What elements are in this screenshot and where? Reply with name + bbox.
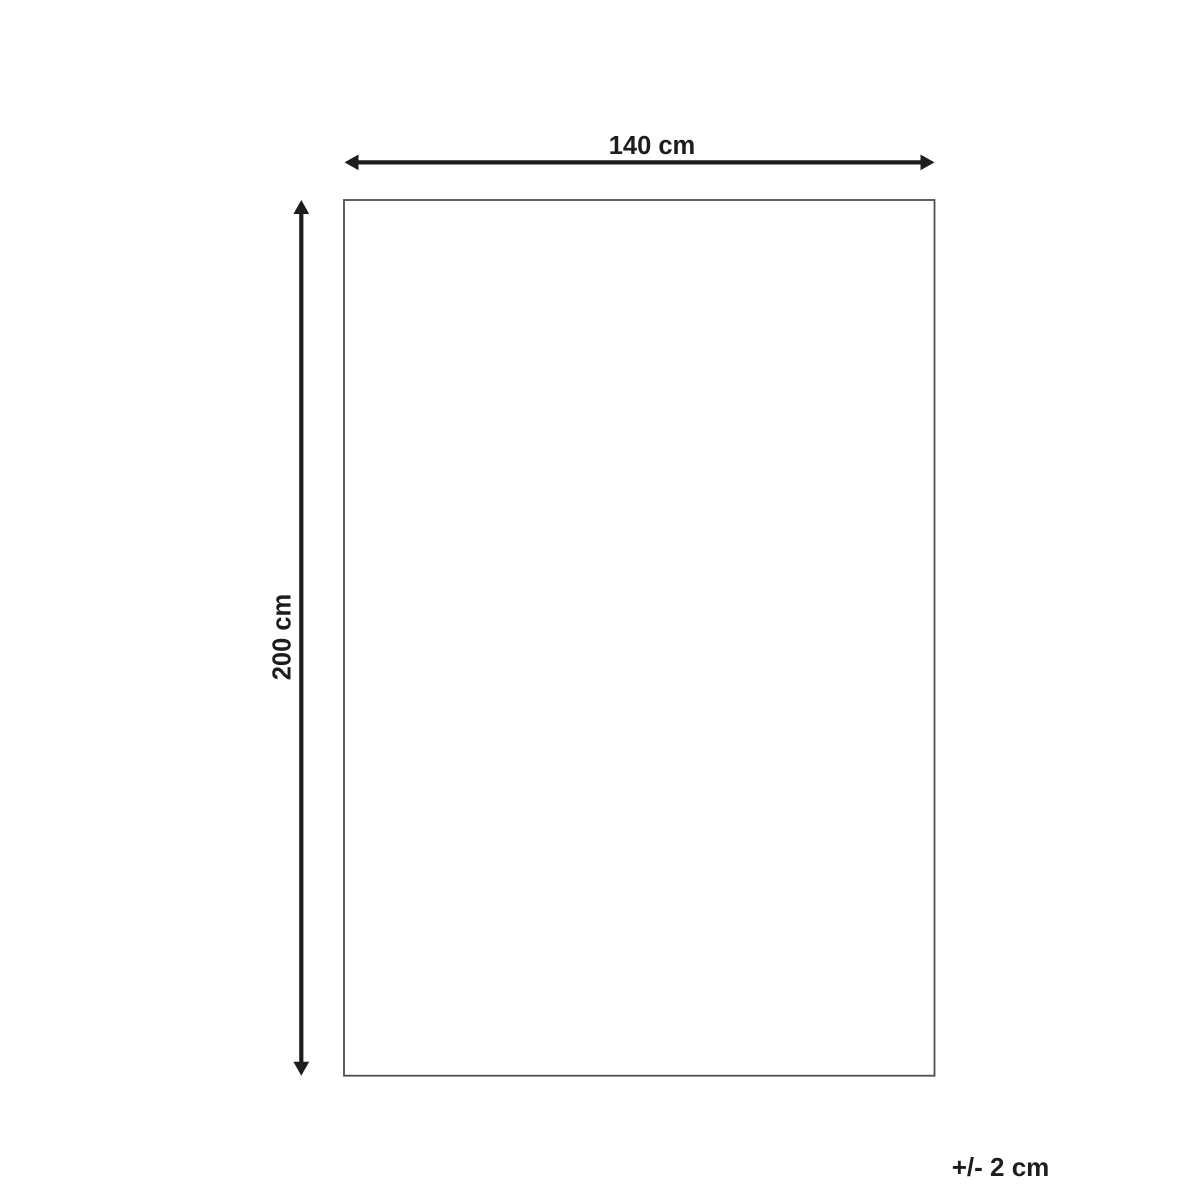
- svg-text:200 cm: 200 cm: [269, 594, 297, 681]
- svg-text:140 cm: 140 cm: [609, 132, 696, 160]
- svg-text:+/- 2 cm: +/- 2 cm: [952, 1152, 1050, 1182]
